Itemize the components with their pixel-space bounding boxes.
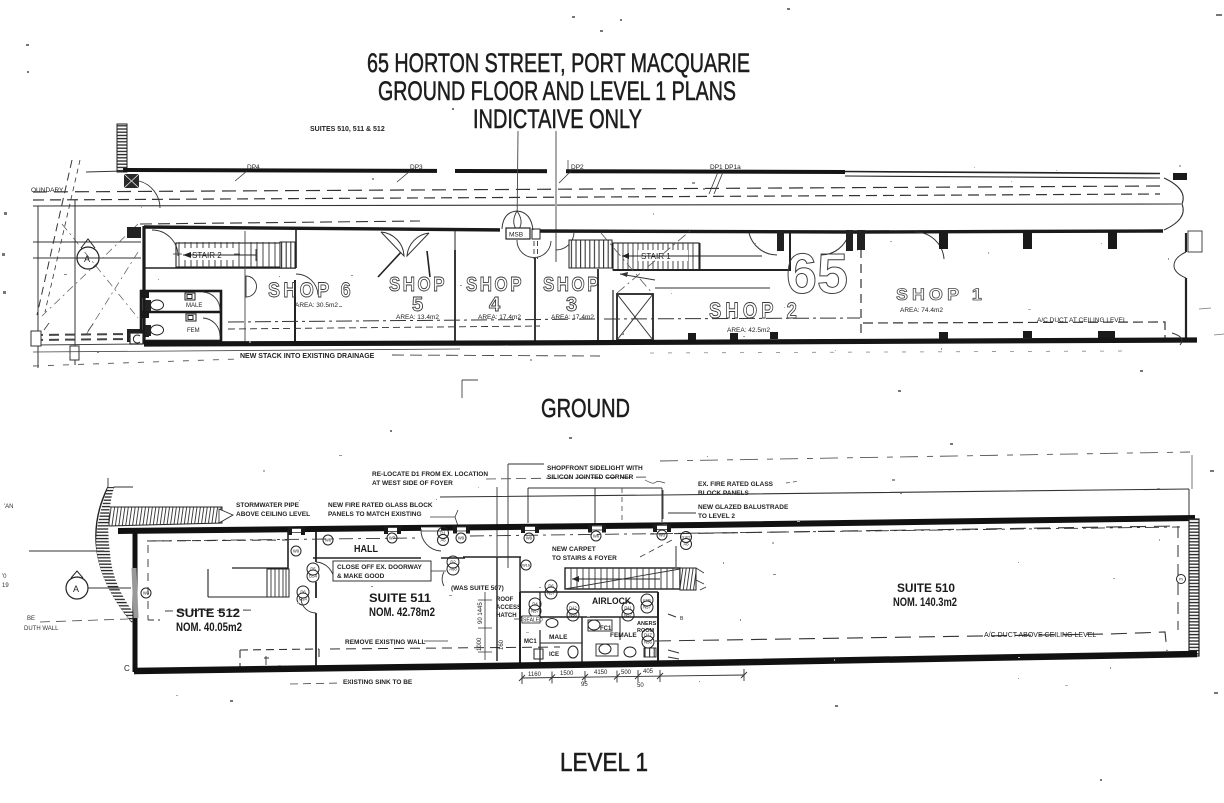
- svg-text:STORMWATER PIPE: STORMWATER PIPE: [236, 502, 300, 509]
- svg-text:EX. FIRE RATED GLASS: EX. FIRE RATED GLASS: [698, 481, 774, 488]
- svg-text:90 1445: 90 1445: [478, 602, 484, 624]
- svg-text:W8: W8: [325, 538, 332, 543]
- svg-text:3: 3: [566, 294, 577, 316]
- svg-text:DP3: DP3: [410, 164, 423, 171]
- svg-text:W9: W9: [293, 549, 300, 554]
- svg-text:STAIR 2: STAIR 2: [192, 251, 222, 260]
- svg-text:PANELS TO MATCH EXISTING: PANELS TO MATCH EXISTING: [328, 511, 422, 518]
- svg-text:DP1 DP1a: DP1 DP1a: [710, 164, 741, 171]
- svg-text:50: 50: [637, 683, 644, 689]
- svg-text:NEW GLAZED BALUSTRADE: NEW GLAZED BALUSTRADE: [698, 504, 789, 511]
- svg-text:ROOF: ROOF: [496, 597, 514, 603]
- svg-text:N57: N57: [624, 613, 632, 618]
- svg-text:4: 4: [489, 294, 501, 316]
- svg-text:SHOP: SHOP: [389, 274, 447, 296]
- svg-text:SHOP: SHOP: [466, 274, 524, 296]
- svg-text:SUITE 511: SUITE 511: [369, 593, 432, 605]
- svg-text:ACCESS: ACCESS: [496, 605, 521, 611]
- svg-text:& MAKE GOOD: & MAKE GOOD: [337, 573, 385, 580]
- svg-text:A: A: [73, 584, 79, 594]
- svg-text:BS4: BS4: [309, 574, 318, 579]
- svg-text:FEM: FEM: [187, 328, 200, 334]
- svg-text:65: 65: [786, 242, 848, 306]
- svg-text:1000: 1000: [477, 637, 483, 651]
- svg-text:CLOSE OFF EX. DOORWAY: CLOSE OFF EX. DOORWAY: [337, 564, 423, 571]
- svg-text:W9: W9: [458, 536, 465, 541]
- svg-text:NEW CARPET: NEW CARPET: [552, 546, 596, 553]
- svg-text:OUNDARY: OUNDARY: [31, 187, 64, 194]
- svg-text:N57: N57: [531, 609, 539, 614]
- svg-text:TO STAIRS & FOYER: TO STAIRS & FOYER: [552, 555, 617, 562]
- svg-text:W3: W3: [143, 591, 150, 596]
- svg-text:BLOCK PANELS: BLOCK PANELS: [698, 490, 749, 497]
- svg-text:MALE: MALE: [186, 303, 202, 309]
- svg-text:AREA: 42.5m2: AREA: 42.5m2: [727, 327, 770, 334]
- svg-text:N56: N56: [569, 613, 577, 618]
- svg-text:1160: 1160: [528, 672, 542, 678]
- svg-text:95: 95: [581, 682, 588, 688]
- svg-text:C: C: [124, 664, 130, 673]
- svg-text:REMOVE EXISTING WALL: REMOVE EXISTING WALL: [345, 639, 426, 646]
- svg-text:500: 500: [621, 670, 632, 676]
- svg-text:N56: N56: [644, 640, 652, 645]
- svg-text:B: B: [680, 616, 684, 622]
- svg-text:4150: 4150: [594, 670, 608, 676]
- svg-text:GROUND FLOOR AND LEVEL 1 PLANS: GROUND FLOOR AND LEVEL 1 PLANS: [378, 76, 736, 106]
- svg-text:SHOP 2: SHOP 2: [709, 298, 801, 323]
- svg-text:160: 160: [499, 639, 505, 650]
- svg-text:ANERS: ANERS: [637, 621, 657, 627]
- svg-text:(WAS SUITE 507): (WAS SUITE 507): [451, 585, 504, 592]
- svg-text:SUITE 510: SUITE 510: [897, 583, 955, 595]
- svg-text:SHOP 6: SHOP 6: [268, 278, 354, 302]
- svg-text:GROUND: GROUND: [541, 393, 630, 423]
- svg-text:W9: W9: [526, 536, 533, 541]
- svg-text:A6: A6: [683, 542, 689, 547]
- svg-text:m: m: [1179, 577, 1183, 582]
- svg-text:SEALED: SEALED: [523, 618, 543, 624]
- svg-text:NOM. 40.05m2: NOM. 40.05m2: [176, 622, 242, 634]
- svg-text:N57: N57: [547, 591, 555, 596]
- svg-text:NEW STACK INTO EXISTING DRAINA: NEW STACK INTO EXISTING DRAINAGE: [240, 353, 375, 360]
- svg-text:19: 19: [2, 583, 9, 589]
- svg-text:SHOPFRONT SIDELIGHT WITH: SHOPFRONT SIDELIGHT WITH: [547, 465, 643, 472]
- svg-text:'0: '0: [2, 574, 7, 580]
- svg-text:MALE: MALE: [549, 634, 568, 641]
- svg-text:FEMALE: FEMALE: [610, 632, 637, 639]
- svg-text:DP2: DP2: [571, 164, 584, 171]
- svg-text:SILICON JOINTED CORNER: SILICON JOINTED CORNER: [547, 474, 634, 481]
- svg-text:SUITES 510, 511 & 512: SUITES 510, 511 & 512: [310, 126, 385, 133]
- svg-text:TO LEVEL 2: TO LEVEL 2: [698, 513, 735, 520]
- svg-text:NOM. 140.3m2: NOM. 140.3m2: [893, 597, 957, 609]
- svg-text:5: 5: [412, 294, 423, 316]
- svg-text:MC1: MC1: [524, 639, 537, 645]
- svg-text:DP4: DP4: [247, 164, 260, 171]
- svg-text:AIRLOCK: AIRLOCK: [592, 596, 631, 606]
- svg-text:INDICTAIVE ONLY: INDICTAIVE ONLY: [473, 104, 642, 134]
- svg-text:EXISTING SINK TO BE: EXISTING SINK TO BE: [343, 679, 413, 686]
- svg-text:AREA: 17.4m2: AREA: 17.4m2: [551, 314, 594, 321]
- svg-text:MSB: MSB: [509, 232, 523, 239]
- svg-text:SHOP: SHOP: [543, 274, 601, 296]
- svg-text:A/C DUCT AT CEILING LEVEL: A/C DUCT AT CEILING LEVEL: [1037, 317, 1127, 324]
- svg-text:A: A: [84, 254, 90, 264]
- svg-text:RE-LOCATE D1 FROM EX. LOCATION: RE-LOCATE D1 FROM EX. LOCATION: [372, 471, 488, 478]
- svg-text:DUTH WALL: DUTH WALL: [24, 626, 59, 632]
- svg-text:AREA: 74.4m2: AREA: 74.4m2: [900, 307, 943, 314]
- svg-text:A/C DUCT ABOVE CEILING LEVEL: A/C DUCT ABOVE CEILING LEVEL: [984, 632, 1096, 639]
- svg-text:W16: W16: [522, 564, 530, 568]
- svg-text:ICE: ICE: [549, 652, 559, 658]
- svg-text:405: 405: [643, 669, 654, 675]
- svg-text:AREA: 30.5m2: AREA: 30.5m2: [295, 302, 338, 309]
- svg-text:BE: BE: [27, 616, 35, 622]
- svg-text:NOM. 42.78m2: NOM. 42.78m2: [369, 607, 435, 619]
- svg-text:AT WEST SIDE OF FOYER: AT WEST SIDE OF FOYER: [372, 480, 453, 487]
- svg-text:SUITE 512: SUITE 512: [176, 608, 240, 620]
- svg-text:LEVEL 1: LEVEL 1: [560, 747, 648, 777]
- svg-text:65 HORTON STREET, PORT MACQUAR: 65 HORTON STREET, PORT MACQUARIE: [367, 48, 750, 78]
- svg-text:SHOP 1: SHOP 1: [896, 285, 986, 304]
- svg-text:ABOVE CEILING LEVEL: ABOVE CEILING LEVEL: [236, 511, 310, 518]
- svg-text:M9A: M9A: [299, 597, 308, 602]
- svg-text:A68: A68: [449, 567, 457, 572]
- svg-text:HATCH: HATCH: [496, 613, 517, 619]
- svg-text:HALL: HALL: [354, 544, 378, 555]
- svg-text:NEW FIRE RATED GLASS BLOCK: NEW FIRE RATED GLASS BLOCK: [328, 502, 433, 509]
- svg-text:1500: 1500: [560, 671, 574, 677]
- svg-text:STAIR 1: STAIR 1: [641, 252, 671, 261]
- svg-text:'AN: 'AN: [4, 504, 13, 510]
- svg-text:N57: N57: [643, 605, 651, 610]
- svg-text:A6: A6: [440, 538, 446, 543]
